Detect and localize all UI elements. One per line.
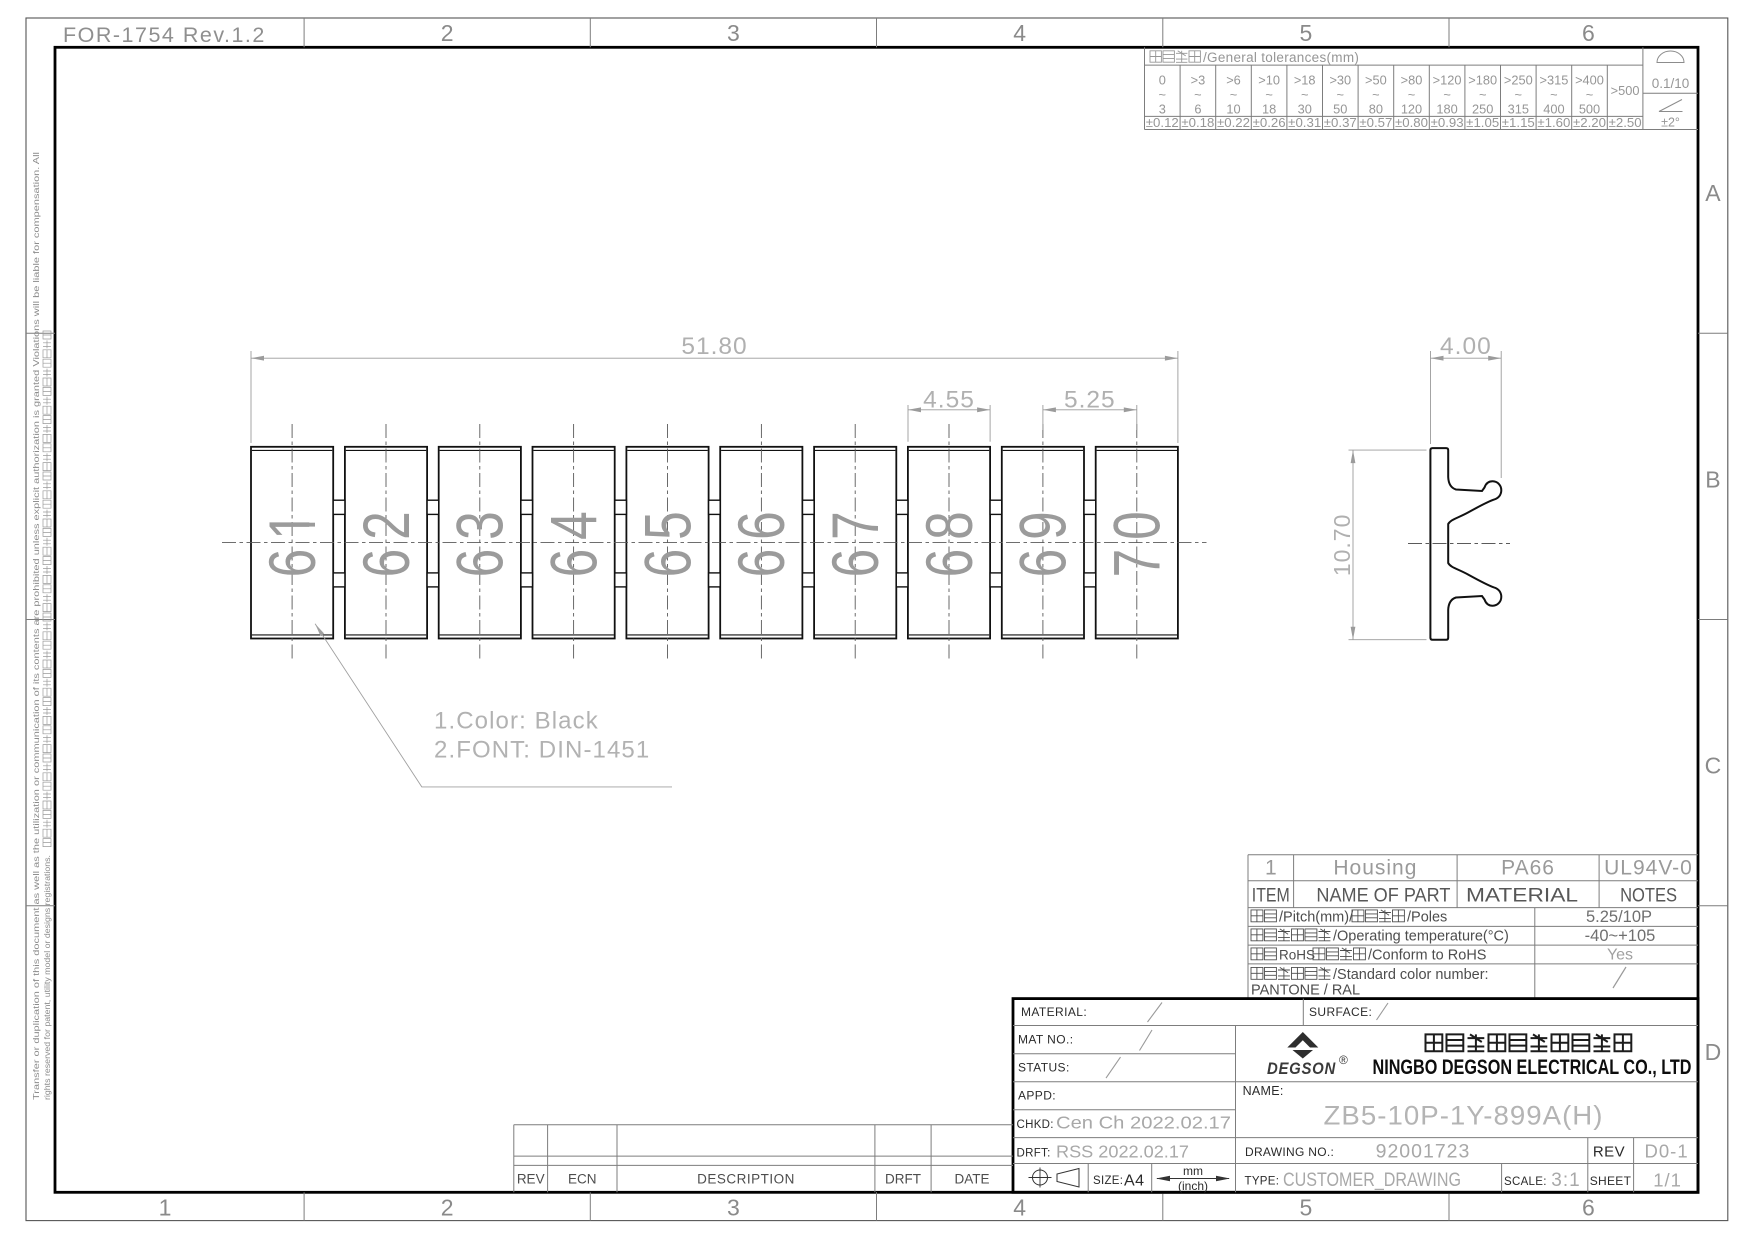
svg-text:PANTONE / RAL: PANTONE / RAL [1251, 983, 1360, 999]
svg-text:>250: >250 [1504, 73, 1533, 88]
svg-text:DRAWING NO.:: DRAWING NO.: [1245, 1145, 1334, 1159]
svg-text:±0.26: ±0.26 [1253, 115, 1286, 130]
svg-text:±0.31: ±0.31 [1288, 115, 1321, 130]
svg-text:1.Color: Black: 1.Color: Black [434, 708, 599, 735]
svg-text:REV: REV [1593, 1144, 1625, 1161]
svg-text:FOR-1754 Rev.1.2: FOR-1754 Rev.1.2 [63, 23, 266, 47]
svg-text:RSS 2022.02.17: RSS 2022.02.17 [1056, 1142, 1189, 1162]
svg-text:±0.22: ±0.22 [1217, 115, 1250, 130]
svg-text:A: A [1705, 180, 1721, 206]
svg-text:>80: >80 [1401, 73, 1423, 88]
svg-text:SIZE:: SIZE: [1093, 1175, 1123, 1187]
svg-text:±1.60: ±1.60 [1537, 115, 1570, 130]
svg-text:~: ~ [1265, 87, 1272, 102]
svg-text:A4: A4 [1124, 1173, 1145, 1190]
svg-text:~: ~ [1586, 87, 1593, 102]
svg-text:5: 5 [1300, 20, 1313, 46]
svg-text:mm: mm [1183, 1164, 1203, 1178]
svg-text:±2°: ±2° [1661, 116, 1680, 130]
svg-text:C: C [1705, 753, 1722, 779]
svg-text:RoHS: RoHS [1279, 948, 1315, 963]
svg-text:61: 61 [255, 502, 330, 577]
svg-text:SHEET: SHEET [1590, 1174, 1632, 1188]
svg-text:SCALE:: SCALE: [1504, 1176, 1547, 1188]
svg-text:Transfer or duplication of: Transfer or duplication of this document… [31, 152, 41, 1100]
svg-text:DRFT:: DRFT: [1017, 1148, 1051, 1160]
svg-text:UL94V-0: UL94V-0 [1604, 857, 1693, 880]
svg-text:>315: >315 [1539, 73, 1568, 88]
svg-text:>10: >10 [1258, 73, 1280, 88]
svg-text:±2.50: ±2.50 [1609, 115, 1642, 130]
svg-text:~: ~ [1159, 87, 1166, 102]
svg-text:>3: >3 [1191, 73, 1206, 88]
svg-text:4.55: 4.55 [923, 386, 975, 413]
svg-text:CUSTOMER_DRAWING: CUSTOMER_DRAWING [1283, 1170, 1461, 1191]
svg-text:67: 67 [818, 502, 893, 577]
svg-text:~: ~ [1301, 87, 1308, 102]
svg-text:4: 4 [1013, 1195, 1026, 1221]
svg-text:(inch): (inch) [1178, 1179, 1208, 1193]
svg-text:2: 2 [441, 20, 454, 46]
svg-text:NOTES: NOTES [1620, 886, 1677, 907]
svg-text:Cen Ch 2022.02.17: Cen Ch 2022.02.17 [1056, 1113, 1231, 1133]
svg-text:92001723: 92001723 [1376, 1141, 1471, 1163]
svg-text:rights reserved for patent,: rights reserved for patent, utility mode… [42, 855, 52, 1100]
svg-text:0: 0 [1159, 73, 1166, 88]
svg-text:69: 69 [1005, 502, 1080, 577]
svg-text:3: 3 [727, 1195, 740, 1221]
svg-text:Yes: Yes [1607, 947, 1633, 964]
svg-text:5.25: 5.25 [1064, 386, 1116, 413]
svg-text:~: ~ [1194, 87, 1201, 102]
svg-text:APPD:: APPD: [1018, 1089, 1056, 1103]
svg-text:5.25/10P: 5.25/10P [1586, 908, 1652, 926]
svg-text:DEGSON: DEGSON [1267, 1060, 1336, 1078]
svg-text:CHKD:: CHKD: [1017, 1119, 1054, 1131]
svg-text:±0.93: ±0.93 [1431, 115, 1464, 130]
svg-text:~: ~ [1337, 87, 1344, 102]
svg-text:Housing: Housing [1333, 857, 1417, 880]
svg-text:SURFACE:: SURFACE: [1309, 1005, 1372, 1019]
svg-text:NAME OF PART: NAME OF PART [1316, 886, 1450, 907]
svg-text:REV: REV [517, 1172, 545, 1187]
svg-text:-40~+105: -40~+105 [1585, 927, 1656, 945]
svg-text:66: 66 [724, 502, 799, 577]
svg-text:~: ~ [1372, 87, 1379, 102]
svg-text:1: 1 [159, 1195, 172, 1221]
svg-text:ITEM: ITEM [1252, 886, 1290, 907]
svg-text:70: 70 [1099, 502, 1174, 577]
svg-text:ECN: ECN [568, 1172, 597, 1187]
svg-text:>18: >18 [1294, 73, 1316, 88]
svg-text:TYPE:: TYPE: [1245, 1176, 1280, 1188]
svg-text:~: ~ [1408, 87, 1415, 102]
svg-text:63: 63 [442, 502, 517, 577]
svg-text:3:1: 3:1 [1551, 1170, 1580, 1191]
svg-text:/Operating temperature(°C): /Operating temperature(°C) [1333, 929, 1509, 945]
svg-text:>120: >120 [1433, 73, 1462, 88]
svg-text:D: D [1705, 1039, 1722, 1065]
svg-text:PA66: PA66 [1501, 857, 1555, 880]
svg-text:64: 64 [536, 502, 611, 577]
svg-text:10.70: 10.70 [1329, 514, 1355, 577]
svg-text:±1.05: ±1.05 [1466, 115, 1499, 130]
svg-text:~: ~ [1230, 87, 1237, 102]
svg-text:/Pitch(mm)/: /Pitch(mm)/ [1279, 910, 1354, 926]
svg-text:MATERIAL:: MATERIAL: [1021, 1005, 1087, 1019]
svg-text:~: ~ [1443, 87, 1450, 102]
svg-text:NAME:: NAME: [1243, 1084, 1284, 1098]
svg-text:62: 62 [349, 502, 424, 577]
svg-text:/Standard color number:: /Standard color number: [1333, 967, 1489, 983]
svg-text:68: 68 [912, 502, 987, 577]
svg-text:~: ~ [1550, 87, 1557, 102]
svg-text:D0-1: D0-1 [1645, 1141, 1689, 1162]
svg-text:6: 6 [1582, 1195, 1595, 1221]
svg-text:1/1: 1/1 [1653, 1170, 1682, 1191]
svg-text:2.FONT: DIN-1451: 2.FONT: DIN-1451 [434, 737, 650, 764]
svg-text:65: 65 [630, 502, 705, 577]
svg-text:>50: >50 [1365, 73, 1387, 88]
svg-text:NINGBO DEGSON ELECTRICAL CO.,: NINGBO DEGSON ELECTRICAL CO., LTD [1373, 1056, 1692, 1079]
svg-text:3: 3 [727, 20, 740, 46]
svg-text:>6: >6 [1226, 73, 1241, 88]
svg-text:MAT NO.:: MAT NO.: [1018, 1033, 1073, 1047]
svg-text:±0.18: ±0.18 [1181, 115, 1214, 130]
svg-text:±0.12: ±0.12 [1146, 115, 1179, 130]
svg-text:±0.80: ±0.80 [1395, 115, 1428, 130]
svg-text:ZB5-10P-1Y-899A(H): ZB5-10P-1Y-899A(H) [1324, 1101, 1604, 1131]
svg-text:/Poles: /Poles [1407, 910, 1447, 926]
svg-text:±1.15: ±1.15 [1502, 115, 1535, 130]
svg-text:DESCRIPTION: DESCRIPTION [697, 1172, 795, 1187]
svg-text:~: ~ [1479, 87, 1486, 102]
svg-text:1: 1 [1265, 857, 1277, 880]
svg-text:>500: >500 [1611, 83, 1640, 98]
svg-text:B: B [1705, 466, 1720, 492]
svg-text:~: ~ [1515, 87, 1522, 102]
svg-text:±2.20: ±2.20 [1573, 115, 1606, 130]
svg-text:STATUS:: STATUS: [1018, 1061, 1070, 1075]
svg-text:/Conform to RoHS: /Conform to RoHS [1368, 948, 1486, 964]
svg-text:4: 4 [1013, 20, 1026, 46]
svg-text:2: 2 [441, 1195, 454, 1221]
svg-text:>30: >30 [1329, 73, 1351, 88]
svg-text:6: 6 [1582, 20, 1595, 46]
svg-text:51.80: 51.80 [681, 333, 747, 360]
svg-text:DATE: DATE [954, 1172, 989, 1187]
svg-text:MATERIAL: MATERIAL [1466, 886, 1578, 907]
svg-text:®: ® [1339, 1053, 1348, 1067]
svg-text:>180: >180 [1468, 73, 1497, 88]
svg-text:5: 5 [1300, 1195, 1313, 1221]
svg-text:4.00: 4.00 [1440, 333, 1492, 360]
svg-text:DRFT: DRFT [885, 1172, 921, 1187]
svg-text:0.1/10: 0.1/10 [1652, 76, 1690, 91]
svg-text:>400: >400 [1575, 73, 1604, 88]
svg-text:±0.57: ±0.57 [1359, 115, 1392, 130]
svg-text:/General tolerances(mm): /General tolerances(mm) [1203, 50, 1359, 65]
svg-text:±0.37: ±0.37 [1324, 115, 1357, 130]
